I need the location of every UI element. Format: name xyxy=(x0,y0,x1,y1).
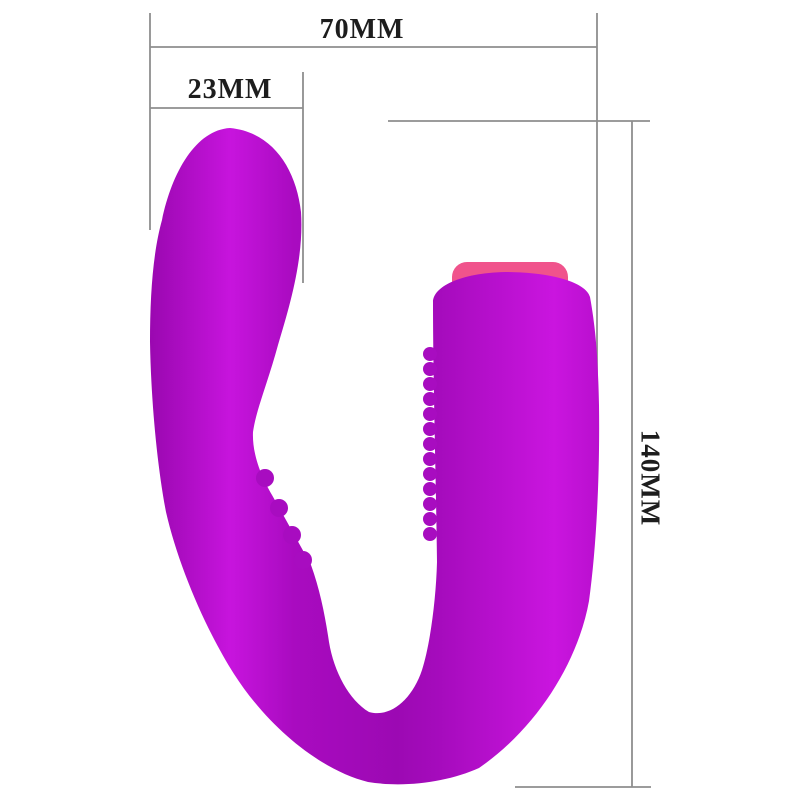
rib-bump xyxy=(423,407,437,421)
dim-70mm-label: 70MM xyxy=(320,14,405,46)
dim-140mm-label: 140MM xyxy=(635,430,666,526)
rib-bump xyxy=(423,467,437,481)
rib-bump xyxy=(423,377,437,391)
product-body xyxy=(150,128,599,784)
rib-bump xyxy=(256,469,274,487)
rib-bump xyxy=(423,362,437,376)
rib-bump xyxy=(283,526,301,544)
rib-bump xyxy=(294,551,312,569)
rib-bump xyxy=(423,512,437,526)
dim-23mm-label: 23MM xyxy=(188,74,273,106)
rib-bump xyxy=(423,422,437,436)
rib-bump xyxy=(423,482,437,496)
rib-bump xyxy=(423,527,437,541)
rib-bump xyxy=(423,437,437,451)
rib-bump xyxy=(423,497,437,511)
rib-bump xyxy=(423,347,437,361)
product-diagram: 70MM 23MM 140MM xyxy=(0,0,800,800)
rib-bump xyxy=(423,452,437,466)
rib-bump xyxy=(270,499,288,517)
rib-bump xyxy=(423,392,437,406)
product-illustration xyxy=(0,0,800,800)
